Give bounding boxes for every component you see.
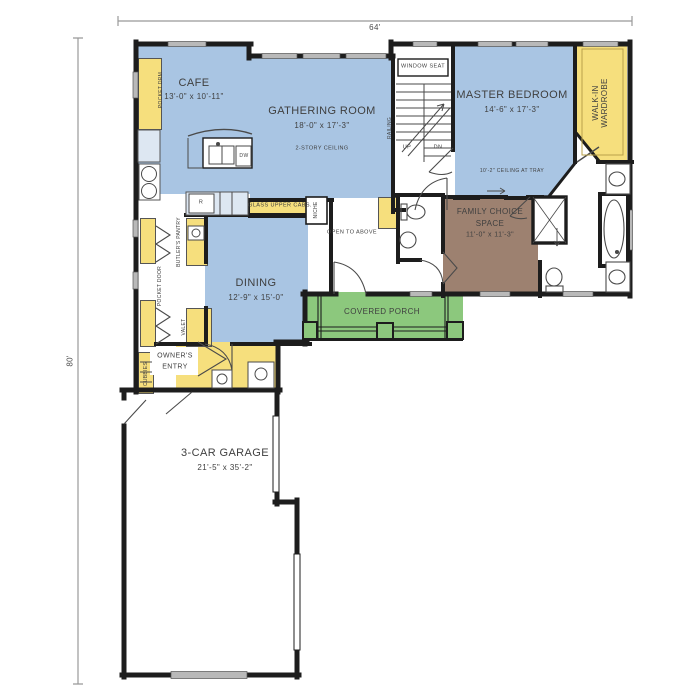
room-size-gathering: 18'-0" x 17'-3"	[294, 121, 349, 131]
dishwasher-label: DW	[239, 153, 248, 159]
wardrobe-line1: WALK-IN	[591, 85, 600, 120]
room-note-master: 10'-2" CEILING AT TRAY	[480, 168, 544, 174]
stairs-dn-label: DN	[434, 145, 443, 152]
floor-plan: 64' 80' CAFE 13'-0" x 10'-11" GATHERING …	[0, 0, 700, 700]
bath-fixtures	[400, 164, 630, 292]
room-label-dining: DINING	[236, 277, 277, 291]
room-label-wardrobe: WALK-IN WARDROBE	[591, 78, 609, 127]
room-size-dining: 12'-9" x 15'-0"	[228, 293, 283, 303]
cubbies-label: CUBBIES	[143, 362, 149, 386]
room-label-cafe: CAFE	[179, 77, 210, 91]
stairs-up-label: UP	[403, 145, 411, 152]
room-label-master: MASTER BEDROOM	[456, 89, 567, 103]
window-seat-label: WINDOW SEAT	[401, 64, 445, 71]
room-size-family: 11'-0" x 11'-3"	[466, 232, 514, 241]
room-label-family-1: FAMILY CHOICE	[457, 207, 523, 217]
toilet-master	[546, 268, 562, 286]
windows	[133, 42, 633, 679]
dimension-height: 80'	[66, 355, 75, 366]
room-label-porch: COVERED PORCH	[344, 307, 420, 317]
exterior-walls	[122, 42, 630, 677]
pocket-door-label: POCKET DOOR	[157, 266, 163, 306]
valet-label: VALET	[181, 319, 187, 336]
room-label-gathering: GATHERING ROOM	[268, 105, 375, 119]
owners-entry-fixtures	[212, 362, 274, 388]
room-label-family-2: SPACE	[476, 219, 505, 229]
room-size-garage: 21'-5" x 35'-2"	[197, 463, 252, 473]
wardrobe-line2: WARDROBE	[600, 78, 609, 127]
railing-label: RAILING	[387, 117, 393, 139]
porch-details	[303, 295, 463, 340]
room-note-gathering: 2-STORY CEILING	[295, 146, 348, 153]
open-to-above-label: OPEN TO ABOVE	[327, 230, 377, 237]
pocket-drm-label: POCKET DRM	[158, 72, 164, 108]
glass-upper-cabs-label: GLASS UPPER CABS.	[248, 203, 312, 210]
room-size-cafe: 13'-0" x 10'-11"	[164, 92, 223, 102]
room-label-owners-2: ENTRY	[162, 364, 188, 373]
sink-powder	[400, 232, 416, 248]
room-size-master: 14'-6" x 17'-3"	[484, 105, 539, 115]
room-label-garage: 3-CAR GARAGE	[181, 447, 269, 461]
doors	[124, 147, 599, 424]
niche-label: NICHE	[313, 201, 319, 218]
room-label-owners-1: OWNER'S	[157, 353, 193, 362]
range-label: R	[199, 200, 203, 207]
dimension-width: 64'	[369, 23, 381, 33]
butlers-pantry-label: BUTLER'S PANTRY	[176, 217, 182, 267]
